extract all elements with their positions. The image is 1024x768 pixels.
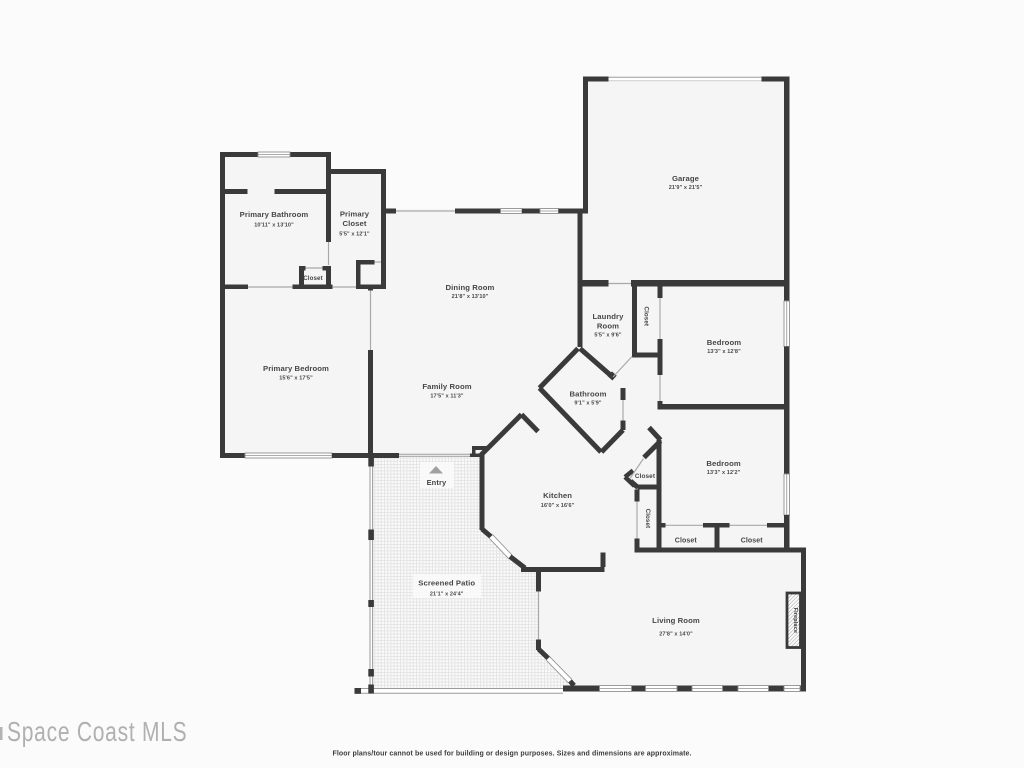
svg-text:21'9" x 21'5": 21'9" x 21'5" — [669, 185, 703, 191]
svg-text:5'5" x 9'6": 5'5" x 9'6" — [594, 333, 622, 339]
svg-text:Primary Bathroom: Primary Bathroom — [240, 210, 309, 219]
svg-text:Floor plans/tour cannot be use: Floor plans/tour cannot be used for buil… — [332, 751, 691, 758]
svg-text:Bedroom: Bedroom — [706, 459, 741, 468]
svg-text:Fireplace: Fireplace — [792, 608, 798, 633]
svg-text:21'8" x 13'10": 21'8" x 13'10" — [452, 294, 489, 300]
svg-text:Primary: Primary — [340, 210, 370, 219]
svg-text:Closet: Closet — [643, 307, 650, 327]
svg-text:10'11" x 13'10": 10'11" x 13'10" — [254, 223, 294, 229]
svg-text:Laundry: Laundry — [592, 312, 624, 321]
svg-text:15'6" x 17'5": 15'6" x 17'5" — [279, 376, 313, 382]
svg-text:27'8" x 14'0": 27'8" x 14'0" — [659, 632, 693, 638]
svg-text:21'1" x 24'4": 21'1" x 24'4" — [430, 591, 464, 597]
svg-text:Entry: Entry — [427, 478, 447, 487]
svg-text:Closet: Closet — [741, 537, 764, 544]
svg-text:17'5" x 11'3": 17'5" x 11'3" — [430, 394, 464, 400]
svg-text:Bathroom: Bathroom — [569, 390, 606, 399]
svg-text:Space Coast MLS: Space Coast MLS — [7, 717, 187, 748]
svg-text:5'5" x 12'1": 5'5" x 12'1" — [339, 232, 370, 238]
svg-text:Primary Bedroom: Primary Bedroom — [263, 364, 329, 373]
svg-text:9'1" x 5'9": 9'1" x 5'9" — [574, 401, 602, 407]
svg-text:Closet: Closet — [303, 275, 323, 282]
svg-text:Screened Patio: Screened Patio — [418, 579, 475, 588]
svg-text:Room: Room — [597, 321, 619, 330]
svg-text:Bedroom: Bedroom — [707, 338, 742, 347]
svg-text:Dining Room: Dining Room — [446, 283, 495, 292]
svg-text:Closet: Closet — [635, 473, 656, 480]
svg-text:Closet: Closet — [644, 509, 651, 529]
svg-text:Garage: Garage — [672, 174, 700, 183]
svg-text:Living Room: Living Room — [652, 616, 700, 625]
svg-text:13'3" x 12'8": 13'3" x 12'8" — [707, 349, 741, 355]
svg-text:Closet: Closet — [675, 537, 698, 544]
svg-text:16'0" x 16'6": 16'0" x 16'6" — [541, 503, 575, 509]
svg-text:Family Room: Family Room — [422, 382, 471, 391]
svg-text:Closet: Closet — [342, 219, 366, 228]
svg-text:Kitchen: Kitchen — [543, 491, 572, 500]
svg-text:13'3" x 12'2": 13'3" x 12'2" — [707, 470, 741, 476]
